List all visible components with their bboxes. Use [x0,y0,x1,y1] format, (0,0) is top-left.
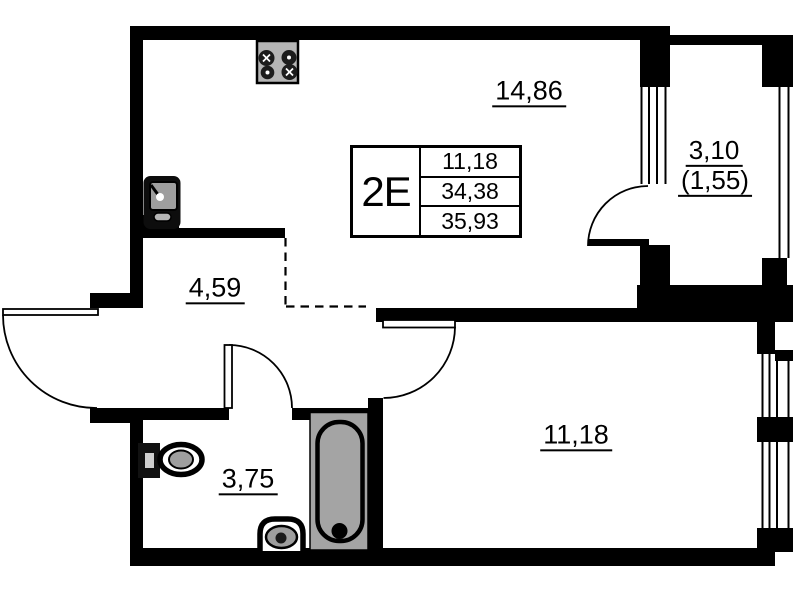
kitchen-sink [144,176,181,229]
wall-bathroom-top-left [143,408,229,420]
wall-bottom [130,548,775,566]
apartment-area-values: 11,18 34,38 35,93 [421,148,519,235]
room-area-hallway: 4,59 [186,273,245,304]
apartment-living-area: 11,18 [421,148,519,178]
dashed-boundary [286,238,367,307]
window-balcony-living [642,87,666,184]
stove-burner-dot [266,71,270,75]
toilet-bowl-inner [169,451,193,469]
bedroom-door-leaf [383,320,455,328]
apartment-area: 34,38 [421,178,519,208]
stove [257,41,298,83]
washbasin-drain [276,533,287,544]
bathtub [310,413,368,551]
wall-bath-bedroom [368,398,383,552]
kitchen-sink-handle [154,213,171,221]
wall-balcony-corner-topright [762,35,793,87]
wall-balcony-corner-bottomright [762,258,787,286]
room-area-balcony: 3,10 [686,137,743,167]
room-area-kitchen-living: 14,86 [492,76,566,107]
room-area-bedroom: 11,18 [540,420,612,451]
room-area-balcony-reduced: (1,55) [678,167,752,197]
apartment-title-block: 2E 11,18 34,38 35,93 [350,145,522,238]
wall-living-right-lower [640,245,670,308]
entry-door [3,309,98,408]
wall-left-lower [130,408,143,566]
entry-door-arc [3,315,97,408]
stove-burner-dot [287,56,291,60]
bedroom-door [383,320,455,398]
apartment-total-area: 35,93 [421,207,519,235]
balcony-door-leaf [588,239,649,246]
bedroom-door-arc [384,327,456,398]
balcony-door [588,186,649,246]
wall-entry-jog-top [90,293,143,308]
toilet-tank-lid [145,453,154,468]
apartment-type-label: 2E [353,148,421,235]
wall-balcony-top [670,35,775,45]
wall-bedroom-window-mullion [757,417,793,442]
wall-bedroom-corner-bottomright [757,528,793,552]
bathroom-door-leaf [225,345,233,408]
room-area-bathroom: 3,75 [219,464,278,495]
washbasin [260,519,303,551]
wall-left-upper [130,26,143,293]
entry-door-leaf [3,309,98,315]
balcony-door-arc [588,186,648,246]
toilet [138,443,202,478]
bathtub-drain [332,523,348,539]
floor-plan: 14,86 4,59 3,75 11,18 3,10 (1,55) 2E 11,… [0,0,799,600]
wall-top [130,26,670,40]
floor-plan-drawing [0,0,799,600]
wall-bedroom-right-top [757,322,775,354]
bathroom-door-arc [229,345,292,408]
kitchen-sink-drain [156,193,164,201]
bathroom-door [225,345,293,408]
wall-living-right-upper [640,26,670,87]
window-balcony-right [780,87,789,258]
